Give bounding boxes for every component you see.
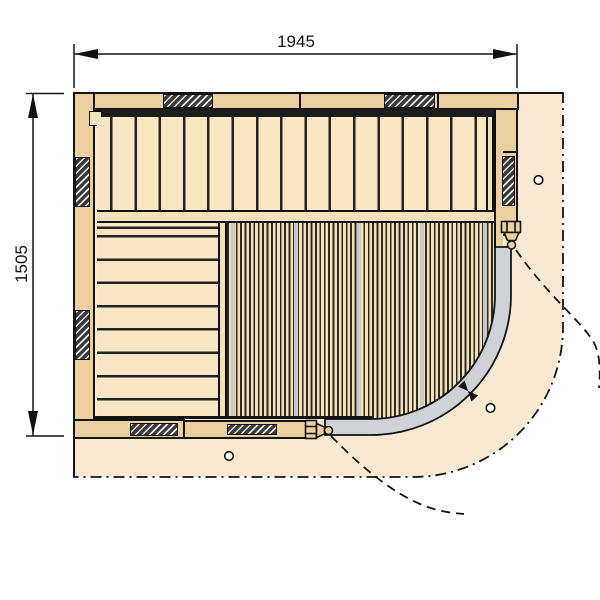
inner-floor-edge-line	[95, 416, 372, 419]
left-wall	[73, 92, 95, 439]
wall-stud-hatch	[130, 423, 178, 436]
arrow-down-icon	[28, 411, 38, 435]
silver-stripe	[294, 223, 298, 419]
wall-stud-hatch	[502, 156, 515, 206]
silver-stripe	[483, 223, 487, 419]
top-wall	[73, 92, 519, 110]
dimension-height	[26, 94, 64, 437]
wall-stud-hatch	[75, 310, 90, 360]
silver-stripe	[420, 223, 424, 419]
wall-joint	[437, 93, 439, 109]
dim-label-height: 1505	[12, 245, 31, 283]
left-bench-edge	[218, 223, 227, 418]
dim-label-width: 1945	[277, 32, 315, 51]
wall-stud-hatch	[163, 94, 213, 108]
upper-bench-right-edge	[486, 117, 494, 210]
arrow-left-icon	[74, 49, 98, 59]
wall-stud-hatch	[75, 157, 90, 207]
left-bench-slats	[97, 223, 218, 418]
arrow-up-icon	[28, 94, 38, 118]
wall-stud-hatch	[227, 424, 277, 435]
silver-stripe	[357, 223, 361, 419]
dimension-width	[74, 44, 517, 88]
silver-stripe	[231, 223, 235, 419]
backrest-rail	[95, 109, 500, 117]
wall-joint	[299, 93, 301, 109]
upper-bench-slats	[97, 117, 486, 210]
arrow-right-icon	[493, 49, 517, 59]
sauna-plan-drawing: 1945 1505	[0, 0, 600, 600]
upper-bench-front-edge	[97, 210, 497, 223]
wall-stud-hatch	[384, 94, 435, 108]
